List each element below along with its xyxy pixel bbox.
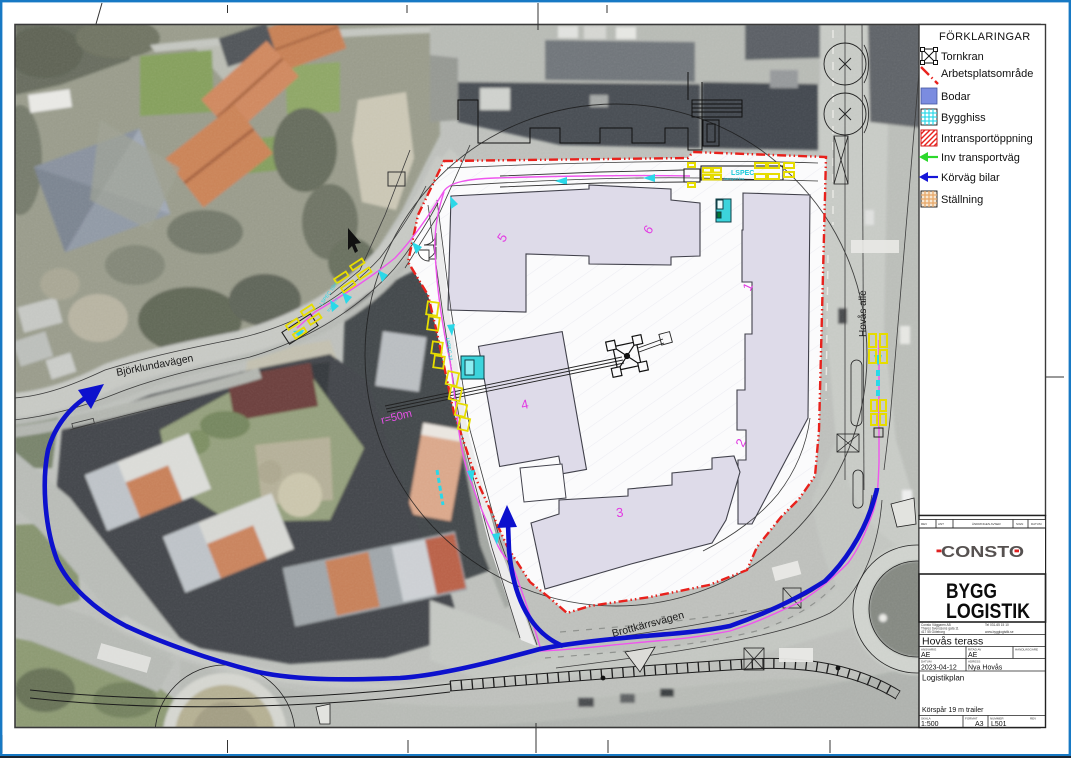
svg-text:L501: L501 bbox=[991, 721, 1007, 728]
svg-text:FÖRKLARINGAR: FÖRKLARINGAR bbox=[939, 31, 1031, 43]
svg-text:Körväg bilar: Körväg bilar bbox=[941, 172, 1000, 184]
svg-text:ANSVARIG: ANSVARIG bbox=[921, 648, 937, 652]
svg-text:transport lina: transport lina bbox=[724, 177, 744, 181]
svg-text:NUMMER: NUMMER bbox=[990, 717, 1004, 721]
svg-text:Bodar: Bodar bbox=[941, 91, 971, 103]
svg-text:ÄNDRINGEN AVSER: ÄNDRINGEN AVSER bbox=[972, 522, 1001, 526]
svg-text:ANT: ANT bbox=[938, 522, 944, 526]
svg-text:Arbetsplatsområde: Arbetsplatsområde bbox=[941, 68, 1033, 80]
svg-text:REV: REV bbox=[1030, 717, 1036, 721]
svg-text:SKALA: SKALA bbox=[921, 717, 931, 721]
svg-text:Tel 031-65 15 10: Tel 031-65 15 10 bbox=[985, 623, 1009, 627]
svg-text:DATUM: DATUM bbox=[921, 660, 932, 664]
svg-text:FORMAT: FORMAT bbox=[965, 717, 978, 721]
svg-text:Intransportöppning: Intransportöppning bbox=[941, 133, 1033, 145]
svg-text:1:500: 1:500 bbox=[921, 721, 939, 728]
svg-text:Körspår 19 m trailer: Körspår 19 m trailer bbox=[922, 706, 984, 714]
svg-text:AE: AE bbox=[968, 652, 978, 659]
svg-text:www.bygglogistik.se: www.bygglogistik.se bbox=[985, 630, 1014, 634]
svg-text:CONSTO: CONSTO bbox=[941, 544, 1024, 561]
svg-text:Bygghiss: Bygghiss bbox=[941, 112, 986, 124]
svg-text:417 55 Göteborg: 417 55 Göteborg bbox=[921, 630, 945, 634]
svg-text:A3: A3 bbox=[975, 721, 984, 728]
svg-text:Tornkran: Tornkran bbox=[941, 51, 984, 63]
svg-text:Hovås allé: Hovås allé bbox=[857, 290, 869, 337]
svg-text:RITAD AV: RITAD AV bbox=[968, 648, 981, 652]
svg-text:LSPEC: LSPEC bbox=[731, 170, 754, 177]
svg-text:AE: AE bbox=[921, 652, 931, 659]
svg-text:REV: REV bbox=[921, 522, 927, 526]
svg-text:ADRESS: ADRESS bbox=[968, 660, 980, 664]
svg-text:Nya Hovås: Nya Hovås bbox=[968, 664, 1003, 672]
svg-text:Inv transportväg: Inv transportväg bbox=[941, 152, 1020, 164]
svg-text:HANDLÄGGARE: HANDLÄGGARE bbox=[1015, 648, 1038, 652]
svg-text:2023-04-12: 2023-04-12 bbox=[921, 665, 957, 672]
svg-text:Logistikplan: Logistikplan bbox=[922, 674, 964, 683]
svg-text:DATUM: DATUM bbox=[1031, 522, 1042, 526]
svg-text:Ställning: Ställning bbox=[941, 194, 983, 206]
svg-text:Hovås terass: Hovås terass bbox=[922, 636, 983, 648]
svg-text:LOGISTIK: LOGISTIK bbox=[946, 600, 1030, 623]
svg-text:SIGN: SIGN bbox=[1016, 522, 1023, 526]
